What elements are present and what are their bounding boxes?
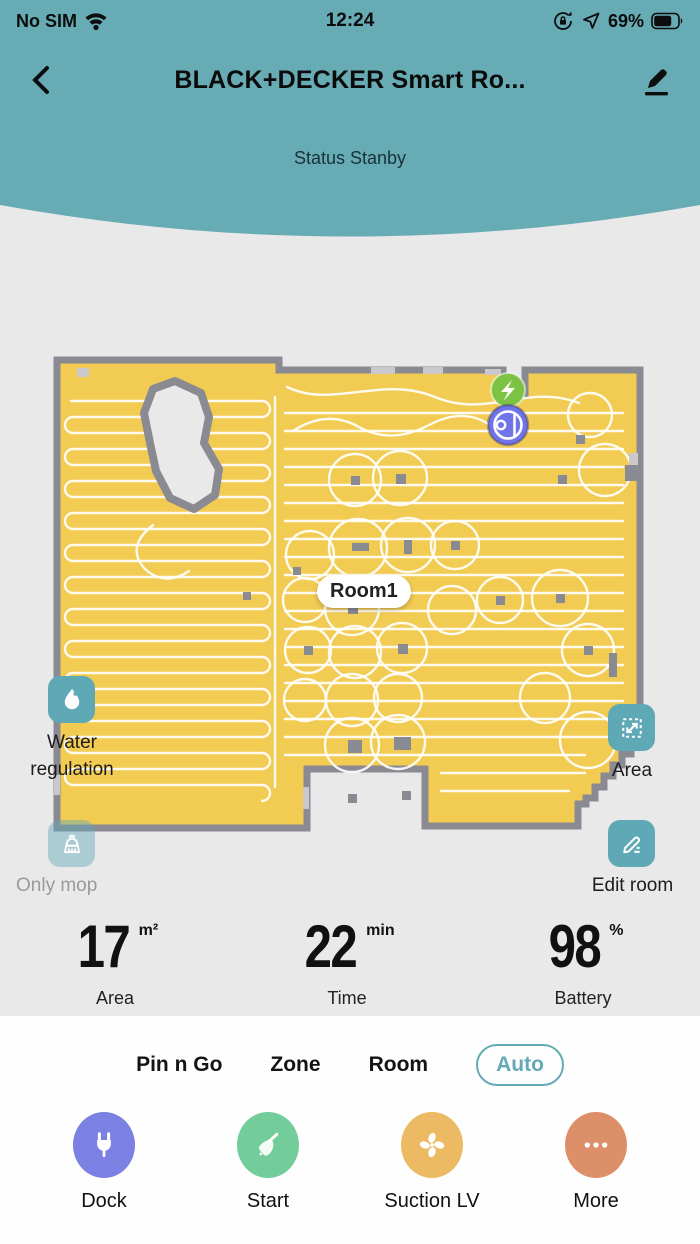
robot-vacuum-app-screen: No SIM 12:24 69% — [0, 0, 700, 1244]
mode-auto[interactable]: Auto — [476, 1044, 564, 1086]
area-value: 17 — [77, 916, 128, 978]
edit-room-button[interactable] — [608, 820, 655, 867]
broom-icon — [253, 1130, 283, 1160]
area-stat-label: Area — [15, 988, 215, 1009]
pencil-icon — [636, 62, 676, 102]
bottom-panel: Pin n Go Zone Room Auto Dock — [0, 1016, 700, 1244]
area-select-icon — [618, 714, 646, 742]
battery-icon — [651, 12, 684, 30]
dock-button[interactable]: Dock — [64, 1112, 144, 1213]
time-stat-label: Time — [247, 988, 447, 1009]
more-label: More — [573, 1190, 619, 1213]
clock: 12:24 — [326, 10, 375, 32]
time-value: 22 — [305, 916, 356, 978]
battery-unit: % — [609, 916, 623, 940]
back-chevron-icon — [22, 60, 62, 100]
dock-label: Dock — [81, 1190, 127, 1213]
battery-value: 98 — [548, 916, 599, 978]
plug-icon — [89, 1130, 119, 1160]
water-drop-icon — [58, 686, 86, 714]
robot-icon — [488, 405, 528, 445]
suction-level-button[interactable]: Suction LV — [392, 1112, 472, 1213]
status-bar: No SIM 12:24 69% — [0, 0, 700, 42]
wifi-icon — [84, 11, 108, 31]
time-unit: min — [366, 916, 394, 940]
clean-mode-tabs: Pin n Go Zone Room Auto — [0, 1042, 700, 1088]
back-button[interactable] — [22, 60, 62, 100]
action-buttons-row: Dock Start — [0, 1112, 700, 1213]
edit-pencil-icon — [618, 830, 646, 858]
stat-area: 17 m² Area — [15, 916, 215, 1009]
rename-device-button[interactable] — [636, 62, 676, 102]
mop-icon — [58, 830, 86, 858]
mode-pin-n-go[interactable]: Pin n Go — [136, 1053, 222, 1077]
water-regulation-label: Water regulation — [10, 729, 134, 783]
room-label[interactable]: Room1 — [317, 575, 411, 608]
only-mop-button[interactable] — [48, 820, 95, 867]
fan-icon — [416, 1129, 448, 1161]
mode-zone[interactable]: Zone — [270, 1053, 320, 1077]
more-button[interactable]: More — [556, 1112, 636, 1213]
start-button[interactable]: Start — [228, 1112, 308, 1213]
orientation-lock-icon — [552, 10, 574, 32]
stats-row: 17 m² Area 22 min Time 98 % Battery — [0, 916, 700, 1016]
floor-map[interactable]: Room1 — [57, 357, 647, 832]
battery-stat-label: Battery — [483, 988, 683, 1009]
page-title: BLACK+DECKER Smart Ro... — [0, 66, 700, 95]
device-status-text: Status Stanby — [0, 148, 700, 169]
nav-bar: BLACK+DECKER Smart Ro... — [0, 48, 700, 112]
area-label: Area — [601, 757, 663, 784]
stat-battery: 98 % Battery — [483, 916, 683, 1009]
start-label: Start — [247, 1190, 289, 1213]
battery-percent-label: 69% — [608, 11, 644, 32]
area-button[interactable] — [608, 704, 655, 751]
charging-dock-icon — [491, 373, 525, 407]
mode-room[interactable]: Room — [369, 1053, 429, 1077]
edit-room-label: Edit room — [575, 872, 690, 899]
area-unit: m² — [139, 916, 159, 940]
more-dots-icon — [580, 1129, 612, 1161]
water-regulation-button[interactable] — [48, 676, 95, 723]
only-mop-label: Only mop — [16, 872, 176, 899]
carrier-label: No SIM — [16, 11, 77, 32]
location-arrow-icon — [581, 11, 601, 31]
suction-label: Suction LV — [384, 1190, 479, 1213]
stat-time: 22 min Time — [247, 916, 447, 1009]
